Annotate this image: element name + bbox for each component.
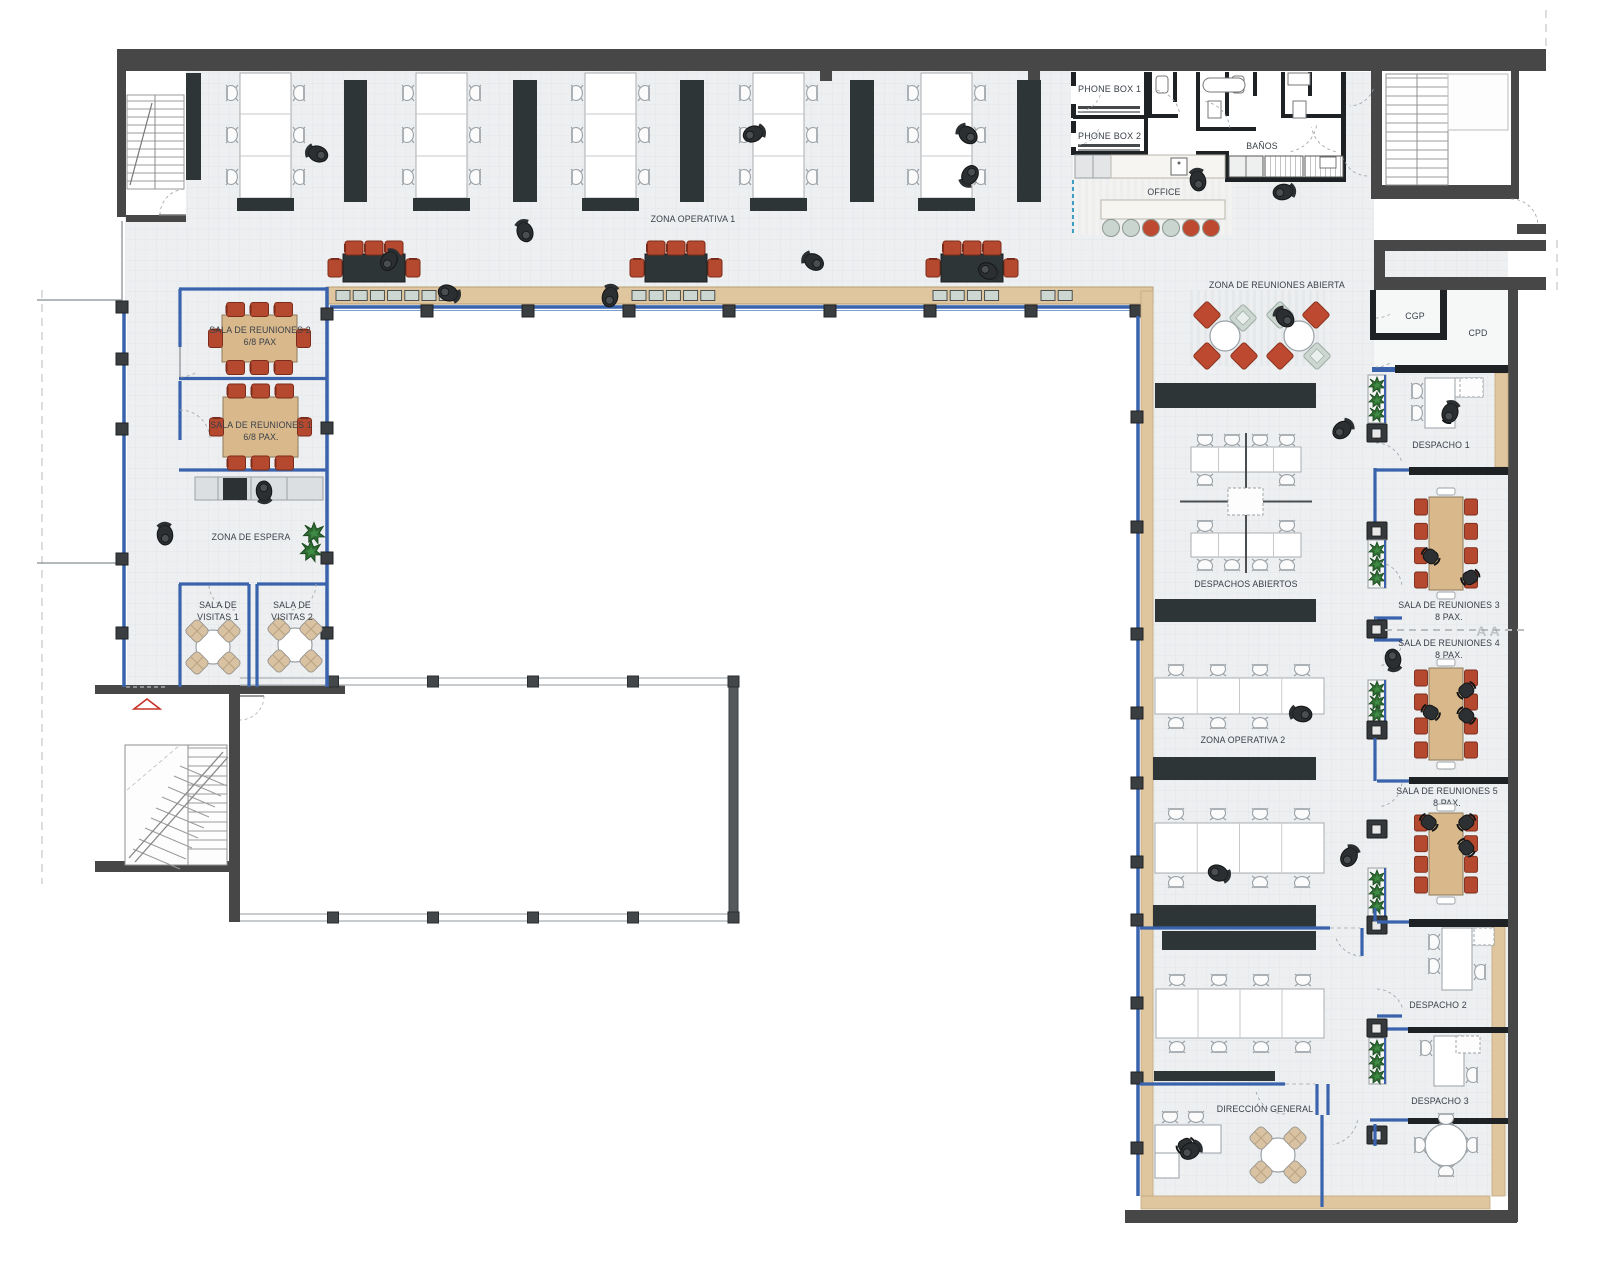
svg-text:PHONE BOX 2: PHONE BOX 2 <box>1078 131 1141 141</box>
svg-text:PHONE BOX 1: PHONE BOX 1 <box>1078 84 1141 94</box>
svg-text:6/8 PAX.: 6/8 PAX. <box>243 432 278 442</box>
svg-text:A A: A A <box>1476 623 1500 639</box>
svg-text:ZONA DE REUNIONES ABIERTA: ZONA DE REUNIONES ABIERTA <box>1209 280 1345 290</box>
svg-text:6/8 PAX: 6/8 PAX <box>244 337 277 347</box>
svg-text:DIRECCIÓN GENERAL: DIRECCIÓN GENERAL <box>1217 1104 1313 1114</box>
svg-text:ZONA DE ESPERA: ZONA DE ESPERA <box>212 532 291 542</box>
svg-text:DESPACHO 2: DESPACHO 2 <box>1409 1000 1467 1010</box>
svg-text:8 PAX.: 8 PAX. <box>1435 612 1463 622</box>
svg-text:SALA DE REUNIONES 5: SALA DE REUNIONES 5 <box>1396 786 1498 796</box>
svg-text:VISITAS 1: VISITAS 1 <box>197 612 239 622</box>
svg-text:DESPACHO 3: DESPACHO 3 <box>1411 1096 1469 1106</box>
svg-text:OFFICE: OFFICE <box>1147 187 1180 197</box>
svg-text:ZONA OPERATIVA 1: ZONA OPERATIVA 1 <box>651 214 736 224</box>
svg-text:SALA DE REUNIONES 1: SALA DE REUNIONES 1 <box>210 420 312 430</box>
svg-text:BAÑOS: BAÑOS <box>1246 141 1278 151</box>
svg-text:SALA DE REUNIONES 3: SALA DE REUNIONES 3 <box>1398 600 1500 610</box>
svg-text:SALA DE REUNIONES 2: SALA DE REUNIONES 2 <box>209 325 311 335</box>
svg-text:SALA DE: SALA DE <box>273 600 311 610</box>
svg-text:DESPACHO 1: DESPACHO 1 <box>1412 440 1470 450</box>
svg-text:SALA DE REUNIONES 4: SALA DE REUNIONES 4 <box>1398 638 1500 648</box>
svg-text:VISITAS 2: VISITAS 2 <box>271 612 313 622</box>
svg-text:SALA DE: SALA DE <box>199 600 237 610</box>
svg-text:DESPACHOS ABIERTOS: DESPACHOS ABIERTOS <box>1194 579 1297 589</box>
svg-text:CPD: CPD <box>1468 328 1487 338</box>
svg-text:CGP: CGP <box>1405 311 1425 321</box>
svg-text:ZONA OPERATIVA 2: ZONA OPERATIVA 2 <box>1201 735 1286 745</box>
svg-text:8 PAX.: 8 PAX. <box>1435 650 1463 660</box>
